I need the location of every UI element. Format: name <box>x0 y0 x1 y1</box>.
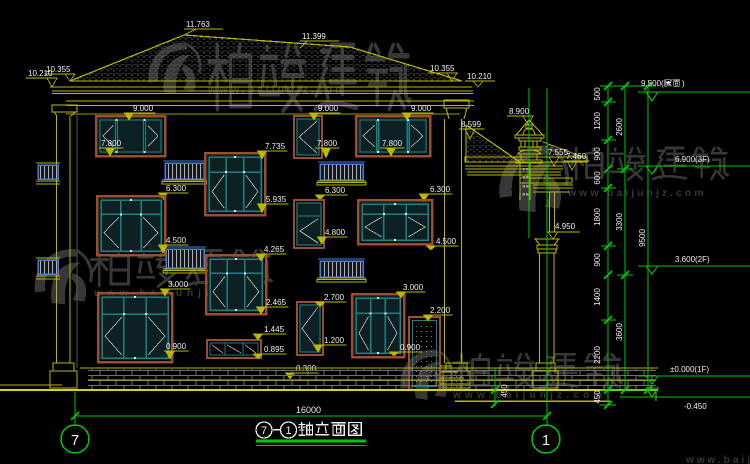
svg-text:6.900(3F): 6.900(3F) <box>675 155 710 164</box>
svg-text:7.735: 7.735 <box>265 142 286 151</box>
svg-text:8.900: 8.900 <box>509 107 530 116</box>
svg-text:7: 7 <box>71 432 79 449</box>
svg-text:4.500: 4.500 <box>166 236 187 245</box>
svg-text:10.355: 10.355 <box>430 64 455 73</box>
svg-text:2.465: 2.465 <box>266 298 287 307</box>
svg-text:4.950: 4.950 <box>555 222 576 231</box>
svg-text:1: 1 <box>542 432 550 449</box>
svg-text:7.460: 7.460 <box>566 152 587 161</box>
svg-text:3300: 3300 <box>615 213 624 231</box>
svg-text:2600: 2600 <box>615 118 624 136</box>
svg-text:3.600(2F): 3.600(2F) <box>675 255 710 264</box>
svg-text:1200: 1200 <box>593 112 602 130</box>
svg-text:4.500: 4.500 <box>436 237 457 246</box>
svg-text:6.300: 6.300 <box>166 184 187 193</box>
svg-text:www.baijunjz.com: www.baijunjz.com <box>207 84 348 96</box>
svg-text:11.399: 11.399 <box>302 32 326 41</box>
svg-text:16000: 16000 <box>296 405 321 415</box>
svg-text:6.300: 6.300 <box>325 186 346 195</box>
svg-text:1.445: 1.445 <box>264 325 285 334</box>
svg-text:7.800: 7.800 <box>382 139 403 148</box>
svg-text:10.210: 10.210 <box>467 72 492 81</box>
svg-text:): ) <box>682 79 685 88</box>
svg-text:www.baijunjz.com: www.baijunjz.com <box>567 187 707 199</box>
svg-text:1: 1 <box>285 425 291 437</box>
svg-text:9.500(: 9.500( <box>641 79 664 88</box>
svg-text:9.000: 9.000 <box>133 104 154 113</box>
svg-text:7.800: 7.800 <box>101 139 122 148</box>
svg-text:9500: 9500 <box>638 229 647 247</box>
svg-text:±0.000(1F): ±0.000(1F) <box>670 365 709 374</box>
svg-text:900: 900 <box>593 253 602 267</box>
svg-text:7: 7 <box>261 425 267 437</box>
svg-text:www.baiju: www.baiju <box>685 455 750 464</box>
svg-text:-0.450: -0.450 <box>684 402 707 411</box>
svg-text:1800: 1800 <box>593 208 602 226</box>
svg-text:1400: 1400 <box>593 288 602 306</box>
svg-text:900: 900 <box>593 147 602 161</box>
svg-text:3.000: 3.000 <box>168 280 189 289</box>
svg-text:450: 450 <box>593 390 602 404</box>
svg-text:0.895: 0.895 <box>264 345 285 354</box>
svg-text:3.000: 3.000 <box>403 283 424 292</box>
svg-text:5.935: 5.935 <box>266 195 287 204</box>
svg-text:6.300: 6.300 <box>430 185 451 194</box>
svg-text:10.210: 10.210 <box>28 69 53 78</box>
svg-text:500: 500 <box>593 87 602 101</box>
svg-text:2.200: 2.200 <box>430 306 451 315</box>
svg-text:11.763: 11.763 <box>186 20 210 29</box>
svg-text:4.800: 4.800 <box>325 228 346 237</box>
svg-text:4.265: 4.265 <box>264 245 285 254</box>
svg-text:www.baijunjz.com: www.baijunjz.com <box>452 390 607 401</box>
svg-text:0.900: 0.900 <box>166 342 187 351</box>
svg-text:2200: 2200 <box>593 346 602 364</box>
svg-text:0.900: 0.900 <box>400 343 421 352</box>
svg-text:600: 600 <box>593 171 602 185</box>
svg-text:3600: 3600 <box>615 323 624 341</box>
svg-text:450: 450 <box>500 384 509 398</box>
svg-text:9.000: 9.000 <box>318 104 339 113</box>
svg-text:1.200: 1.200 <box>324 336 345 345</box>
svg-text:9.000: 9.000 <box>411 104 432 113</box>
svg-text:2.700: 2.700 <box>324 293 345 302</box>
svg-text:8.599: 8.599 <box>461 120 482 129</box>
svg-text:7.800: 7.800 <box>317 139 338 148</box>
